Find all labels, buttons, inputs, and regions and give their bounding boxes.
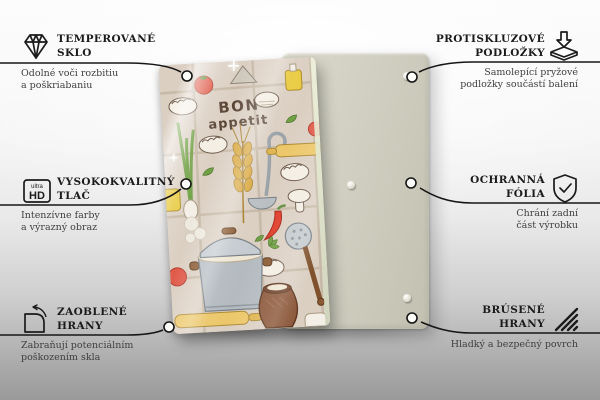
feature-rounded-edges: ZAOBLENÉ HRANY — [57, 306, 127, 334]
feature-desc: Chrání zadní — [516, 208, 578, 220]
ultra-hd-icon: ultra HD — [21, 175, 53, 207]
callout-ring-top-left — [182, 71, 192, 81]
feature-ground-edges-desc: Hladký a bezpečný povrch — [451, 339, 578, 351]
feature-title: ZAOBLENÉ — [57, 306, 127, 320]
feature-tempered-glass: TEMPEROVANÉ SKLO — [57, 33, 156, 61]
feature-desc: část výrobku — [516, 220, 578, 232]
feature-title: HRANY — [57, 320, 127, 334]
feature-title: PODLOŽKY — [436, 47, 545, 61]
feature-desc: a výrazný obraz — [21, 222, 100, 234]
feature-desc: Odolné voči rozbitiu — [21, 68, 118, 80]
product-feature-diagram: BON appetit — [0, 0, 600, 400]
rounded-corner-icon — [20, 304, 52, 336]
feature-protective-film: OCHRANNÁ FÓLIA — [470, 174, 545, 202]
callout-ring-top-right — [407, 72, 417, 82]
callout-ring-bottom-right — [407, 313, 417, 323]
feature-desc: Hladký a bezpečný povrch — [451, 339, 578, 351]
feature-title: BRÚSENÉ — [482, 304, 545, 318]
feature-title: HRANY — [482, 318, 545, 332]
feature-ground-edges: BRÚSENÉ HRANY — [482, 304, 545, 332]
feature-title: SKLO — [57, 47, 156, 61]
feature-protective-film-desc: Chrání zadní část výrobku — [516, 208, 578, 233]
feature-title: TEMPEROVANÉ — [57, 33, 156, 47]
feature-title: FÓLIA — [470, 188, 545, 202]
callout-ring-bottom-left — [164, 322, 174, 332]
feature-title: OCHRANNÁ — [470, 174, 545, 188]
feature-tempered-glass-desc: Odolné voči rozbitiu a poškriabaniu — [21, 68, 118, 93]
callout-ring-mid-right — [406, 178, 416, 188]
feature-desc: a poškriabaniu — [21, 80, 118, 92]
feature-desc: Samolepící pryžové — [460, 67, 578, 79]
hd-label: HD — [29, 190, 45, 202]
ground-edges-icon — [549, 302, 581, 334]
feature-title: VYSOKOKVALITNÝ — [57, 176, 175, 190]
diamond-icon — [20, 31, 52, 63]
anti-slip-pads-icon — [548, 29, 580, 61]
feature-desc: Intenzívne farby — [21, 210, 100, 222]
feature-high-quality-print: VYSOKOKVALITNÝ TLAČ — [57, 176, 175, 204]
feature-desc: podložky součástí balení — [460, 79, 578, 91]
feature-desc: Zabraňují potenciálním — [21, 340, 133, 352]
feature-title: TLAČ — [57, 190, 175, 204]
feature-anti-slip-pads-desc: Samolepící pryžové podložky součástí bal… — [460, 67, 578, 92]
feature-rounded-edges-desc: Zabraňují potenciálním poškozením skla — [21, 340, 133, 365]
feature-anti-slip-pads: PROTISKLUZOVÉ PODLOŽKY — [436, 33, 545, 61]
feature-desc: poškozením skla — [21, 352, 133, 364]
feature-high-quality-print-desc: Intenzívne farby a výrazný obraz — [21, 210, 100, 235]
feature-title: PROTISKLUZOVÉ — [436, 33, 545, 47]
callout-ring-mid-left — [181, 179, 191, 189]
shield-check-icon — [549, 172, 581, 204]
